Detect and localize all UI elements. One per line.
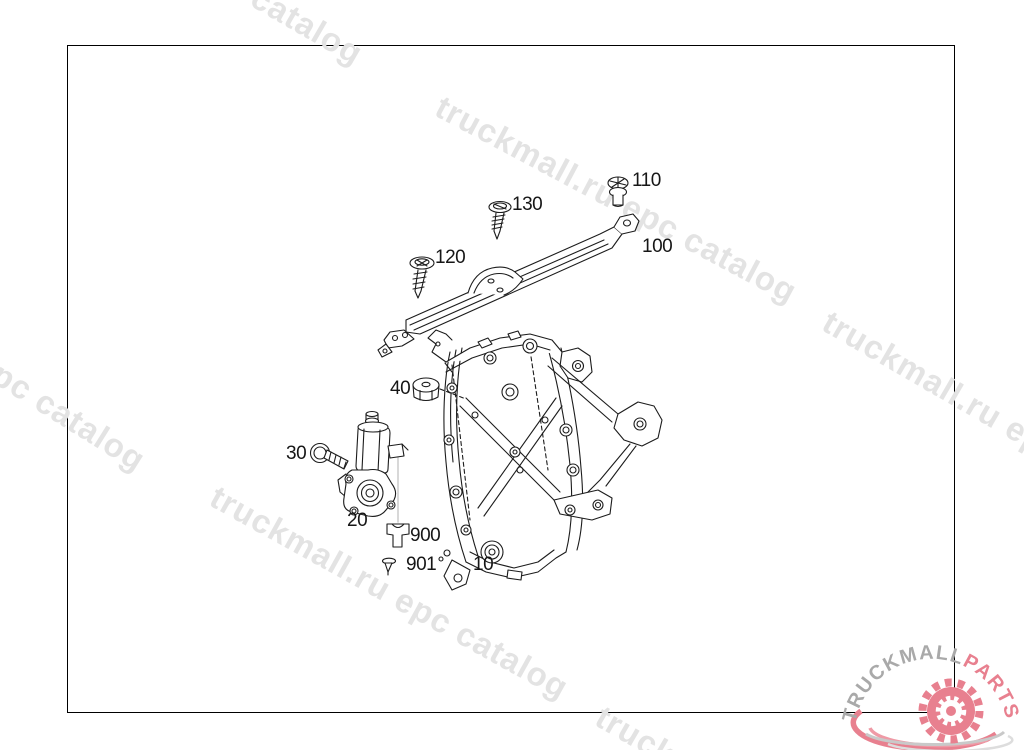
part-label-110: 110 xyxy=(632,171,661,191)
bolt-icon-110 xyxy=(608,177,628,207)
regulator-drawing-10 xyxy=(428,330,662,590)
clip-icon-900 xyxy=(387,524,409,547)
parts-diagram-page: truckmall.ru epc catalog truckmall.ru ep… xyxy=(0,0,1024,750)
part-label-100: 100 xyxy=(642,237,672,257)
part-label-901: 901 xyxy=(406,555,436,575)
part-label-30: 30 xyxy=(286,444,306,464)
part-label-130: 130 xyxy=(512,195,542,215)
part-label-40: 40 xyxy=(390,379,410,399)
part-label-120: 120 xyxy=(435,248,465,268)
gear-icon xyxy=(923,683,980,740)
rivet-icon-901 xyxy=(383,558,396,575)
motor-drawing-20 xyxy=(338,412,408,523)
screw-icon-130 xyxy=(489,202,511,240)
part-label-10: 10 xyxy=(473,555,493,575)
part-label-20: 20 xyxy=(347,511,367,531)
brand-logo: TRUCKMALLPARTS xyxy=(836,616,1024,750)
bolt-icon-30 xyxy=(311,444,349,470)
part-label-900: 900 xyxy=(410,526,440,546)
screw-icon-120 xyxy=(410,257,434,298)
